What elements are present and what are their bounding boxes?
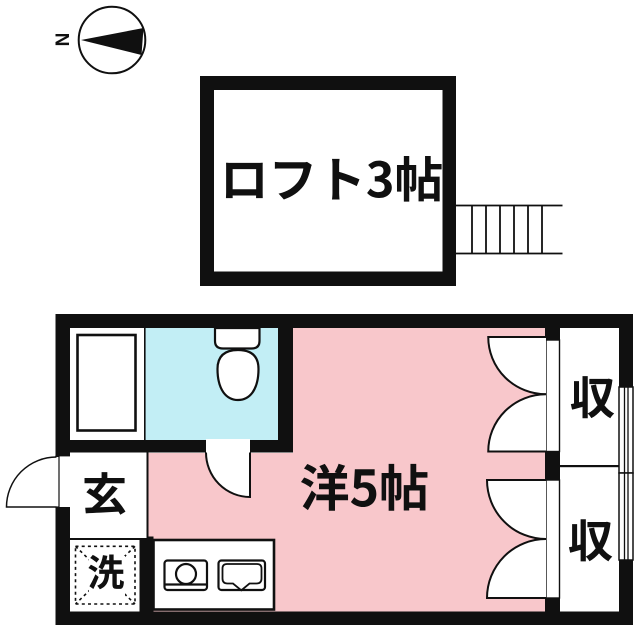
svg-text:N: N [53,33,74,47]
